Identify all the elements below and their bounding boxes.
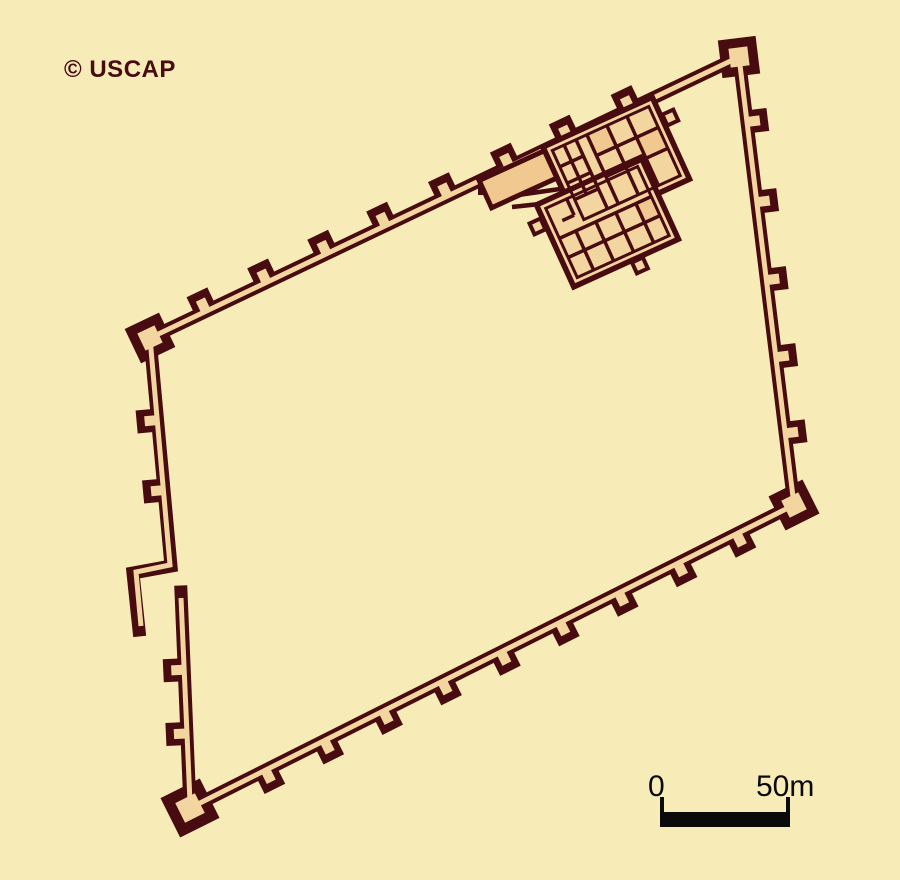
tower-core (619, 594, 624, 605)
tower-core (777, 356, 789, 357)
tower-core (678, 564, 683, 575)
site-plan-page: © USCAP 0 50m (0, 0, 900, 880)
tower-core (174, 734, 186, 735)
tower-core (786, 432, 798, 433)
tower-core (200, 300, 205, 311)
map-background (0, 0, 900, 880)
corner-tower-core (728, 46, 749, 67)
tower-core (502, 653, 507, 664)
tower-core (266, 771, 271, 782)
site-plan-drawing (0, 0, 900, 880)
scale-bar-left-tick (660, 797, 664, 813)
tower-core (767, 279, 779, 280)
tower-core (737, 535, 742, 546)
tower-core (748, 120, 760, 121)
tower-core (384, 712, 389, 723)
tower-core (261, 271, 266, 282)
tower-core (325, 741, 330, 752)
copyright-label: © USCAP (64, 56, 176, 84)
tower-core (380, 214, 385, 225)
scale-bar-right-tick (786, 797, 790, 813)
tower-core (504, 155, 509, 166)
tower-core (171, 670, 183, 671)
tower-core (442, 184, 447, 195)
tower-core (321, 242, 326, 253)
tower-core (443, 682, 448, 693)
tower-core (151, 490, 163, 491)
scale-bar (660, 812, 790, 827)
tower-core (560, 623, 565, 634)
tower-core (145, 420, 157, 421)
tower-core (758, 201, 770, 202)
